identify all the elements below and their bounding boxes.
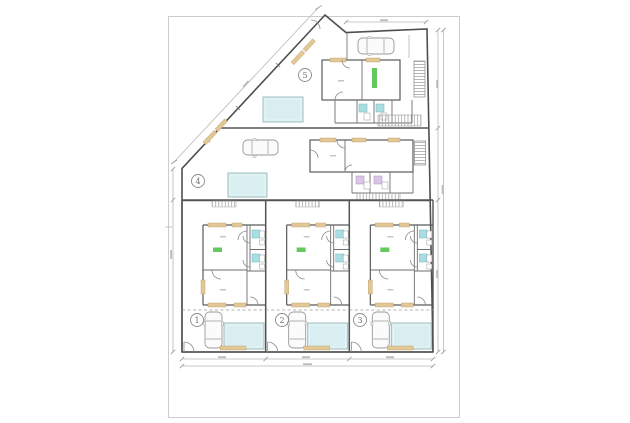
staircase [414,61,425,97]
green-window-marker [372,68,377,88]
car-plan [358,37,394,56]
unit-3-label: 3 [357,316,362,325]
swimming-pool [263,97,303,122]
car-plan [243,139,278,158]
ramp-hatch [378,115,421,126]
swimming-pool [228,173,267,197]
drawing-viewer: 1 2 3 4 5 [0,0,630,423]
staircase [415,141,426,165]
unit-4-label: 4 [195,177,200,186]
unit-1-label: 1 [194,316,199,325]
site-plan-drawing: 1 2 3 4 5 [0,0,630,423]
unit-2-label: 2 [279,316,284,325]
unit-5-label: 5 [302,71,307,80]
terrace-hatch [357,193,400,200]
